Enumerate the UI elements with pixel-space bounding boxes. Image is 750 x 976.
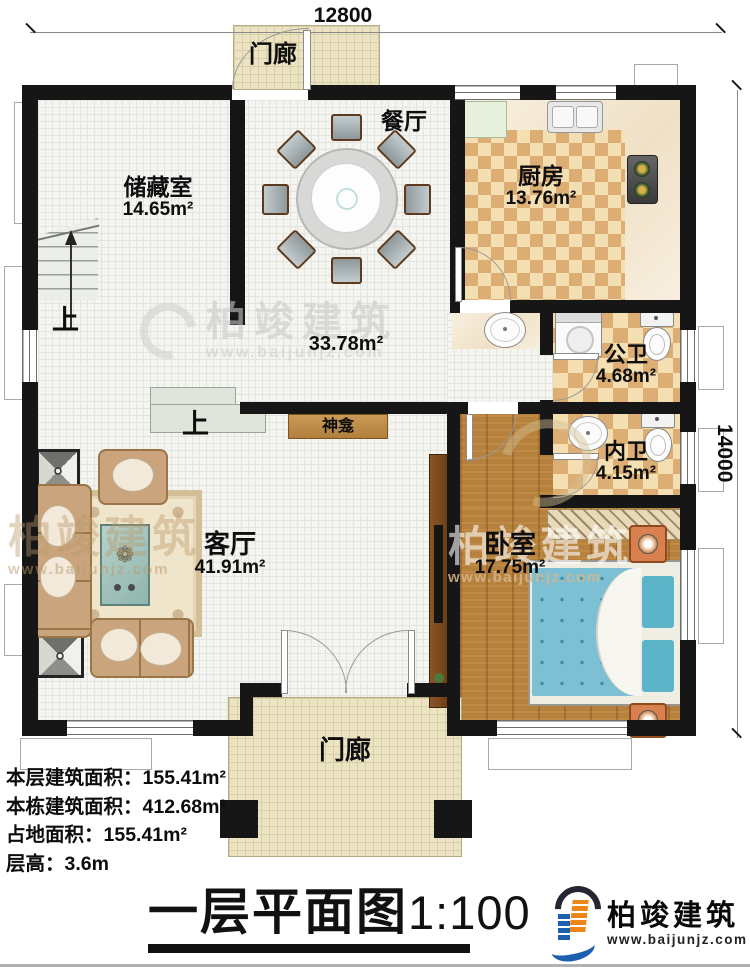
chair bbox=[262, 184, 289, 215]
wall bbox=[680, 484, 696, 550]
side-table bbox=[36, 634, 84, 678]
room-label-porch-bottom: 门廊 bbox=[319, 736, 371, 764]
watermark-url: www.baijunjz.com bbox=[8, 562, 200, 579]
window bbox=[67, 720, 193, 736]
chair bbox=[331, 114, 362, 141]
wall bbox=[680, 640, 696, 720]
window bbox=[556, 85, 616, 100]
window bbox=[497, 720, 627, 736]
room-label-inner-bath: 内卫 4.15m² bbox=[596, 440, 656, 484]
wall bbox=[22, 100, 38, 330]
wall bbox=[193, 720, 240, 736]
room-label-dining: 餐厅 bbox=[381, 109, 427, 134]
wall bbox=[520, 85, 556, 100]
window bbox=[680, 330, 696, 382]
room-label-bedroom: 卧室 17.75m² bbox=[475, 530, 546, 579]
brand-logo: 柏竣建筑 www.baijunjz.com bbox=[549, 884, 749, 972]
burner-icon bbox=[634, 182, 650, 198]
window-sill bbox=[698, 326, 724, 390]
wall bbox=[447, 683, 460, 736]
watermark: 柏竣建筑 www.baijunjz.com bbox=[8, 514, 200, 579]
drawing-title: 一层平面图 1:100 bbox=[148, 872, 531, 944]
fridge bbox=[463, 101, 507, 138]
info-block: 本层建筑面积：155.41m² 本栋建筑面积：412.68m² 占地面积：155… bbox=[6, 764, 226, 878]
room-label-porch-top: 门廊 bbox=[249, 42, 297, 68]
window bbox=[680, 550, 696, 640]
pillow bbox=[640, 638, 676, 694]
brand-logo-icon bbox=[549, 886, 601, 970]
sofa-pillow bbox=[140, 632, 182, 666]
dimension-tick-icon bbox=[731, 80, 742, 91]
porch-bottom-floor bbox=[228, 697, 462, 857]
dimension-right-label: 14000 bbox=[712, 424, 736, 482]
sink-basin bbox=[552, 106, 574, 128]
floor-plan: 12800 14000 bbox=[0, 0, 750, 976]
dining-table-hub bbox=[336, 188, 358, 210]
title-scale: 1:100 bbox=[408, 885, 531, 940]
room-label-living: 客厅 41.91m² bbox=[195, 530, 266, 579]
dimension-top-line bbox=[30, 32, 722, 33]
up-arrow-icon bbox=[65, 230, 77, 245]
room-label-storage: 储藏室 14.65m² bbox=[123, 175, 194, 220]
stove bbox=[627, 155, 658, 204]
wall bbox=[240, 402, 468, 414]
brand-url: www.baijunjz.com bbox=[607, 932, 748, 947]
wall bbox=[680, 100, 696, 330]
window bbox=[680, 432, 696, 484]
brand-name: 柏竣建筑 bbox=[607, 892, 739, 934]
wall bbox=[22, 720, 67, 736]
wall bbox=[240, 683, 253, 736]
dimension-right-line bbox=[737, 90, 738, 738]
sink-basin bbox=[576, 106, 598, 128]
table-cup-icon bbox=[128, 584, 135, 591]
kitchen-sink bbox=[547, 101, 603, 133]
info-line: 本层建筑面积：155.41m² bbox=[6, 764, 226, 793]
title-text: 一层平面图 bbox=[148, 872, 408, 944]
wall bbox=[230, 100, 245, 325]
pillow bbox=[640, 574, 676, 630]
room-label-kitchen: 厨房 13.76m² bbox=[506, 164, 577, 209]
door-leaf bbox=[408, 630, 415, 694]
shrine-shelf: 神龛 bbox=[288, 414, 388, 439]
wall bbox=[22, 85, 232, 100]
chair bbox=[404, 184, 431, 215]
chair bbox=[331, 257, 362, 284]
watermark-logo-icon bbox=[129, 292, 207, 370]
tv bbox=[434, 525, 443, 623]
nightstand bbox=[629, 525, 667, 563]
window-sill bbox=[488, 738, 632, 770]
washbasin bbox=[484, 312, 526, 348]
sofa-pillow bbox=[112, 458, 154, 492]
wall bbox=[627, 720, 696, 736]
window bbox=[455, 85, 520, 100]
dimension-top-label: 12800 bbox=[314, 4, 372, 28]
wall bbox=[308, 85, 455, 100]
shrine-label: 神龛 bbox=[322, 418, 354, 435]
room-label-hall-area: 33.78m² bbox=[309, 334, 384, 356]
wall bbox=[616, 85, 696, 100]
window-sill bbox=[698, 548, 724, 644]
stairs-up-label: 上 bbox=[52, 298, 79, 337]
info-line: 占地面积：155.41m² bbox=[6, 821, 226, 850]
title-underline bbox=[148, 944, 470, 953]
burner-icon bbox=[634, 161, 650, 177]
landing-up-label: 上 bbox=[182, 402, 209, 441]
sofa-pillow bbox=[100, 628, 138, 662]
table-cup-icon bbox=[114, 584, 121, 591]
plant-icon bbox=[434, 673, 444, 683]
window bbox=[22, 330, 38, 382]
lamp-icon bbox=[638, 534, 658, 554]
watermark-name: 柏竣建筑 bbox=[8, 514, 200, 562]
wall bbox=[510, 300, 696, 313]
wall bbox=[460, 720, 497, 736]
wall bbox=[540, 313, 553, 355]
info-line: 本栋建筑面积：412.68m² bbox=[6, 793, 226, 822]
room-label-public-bath: 公卫 4.68m² bbox=[596, 343, 656, 387]
column bbox=[434, 800, 472, 838]
